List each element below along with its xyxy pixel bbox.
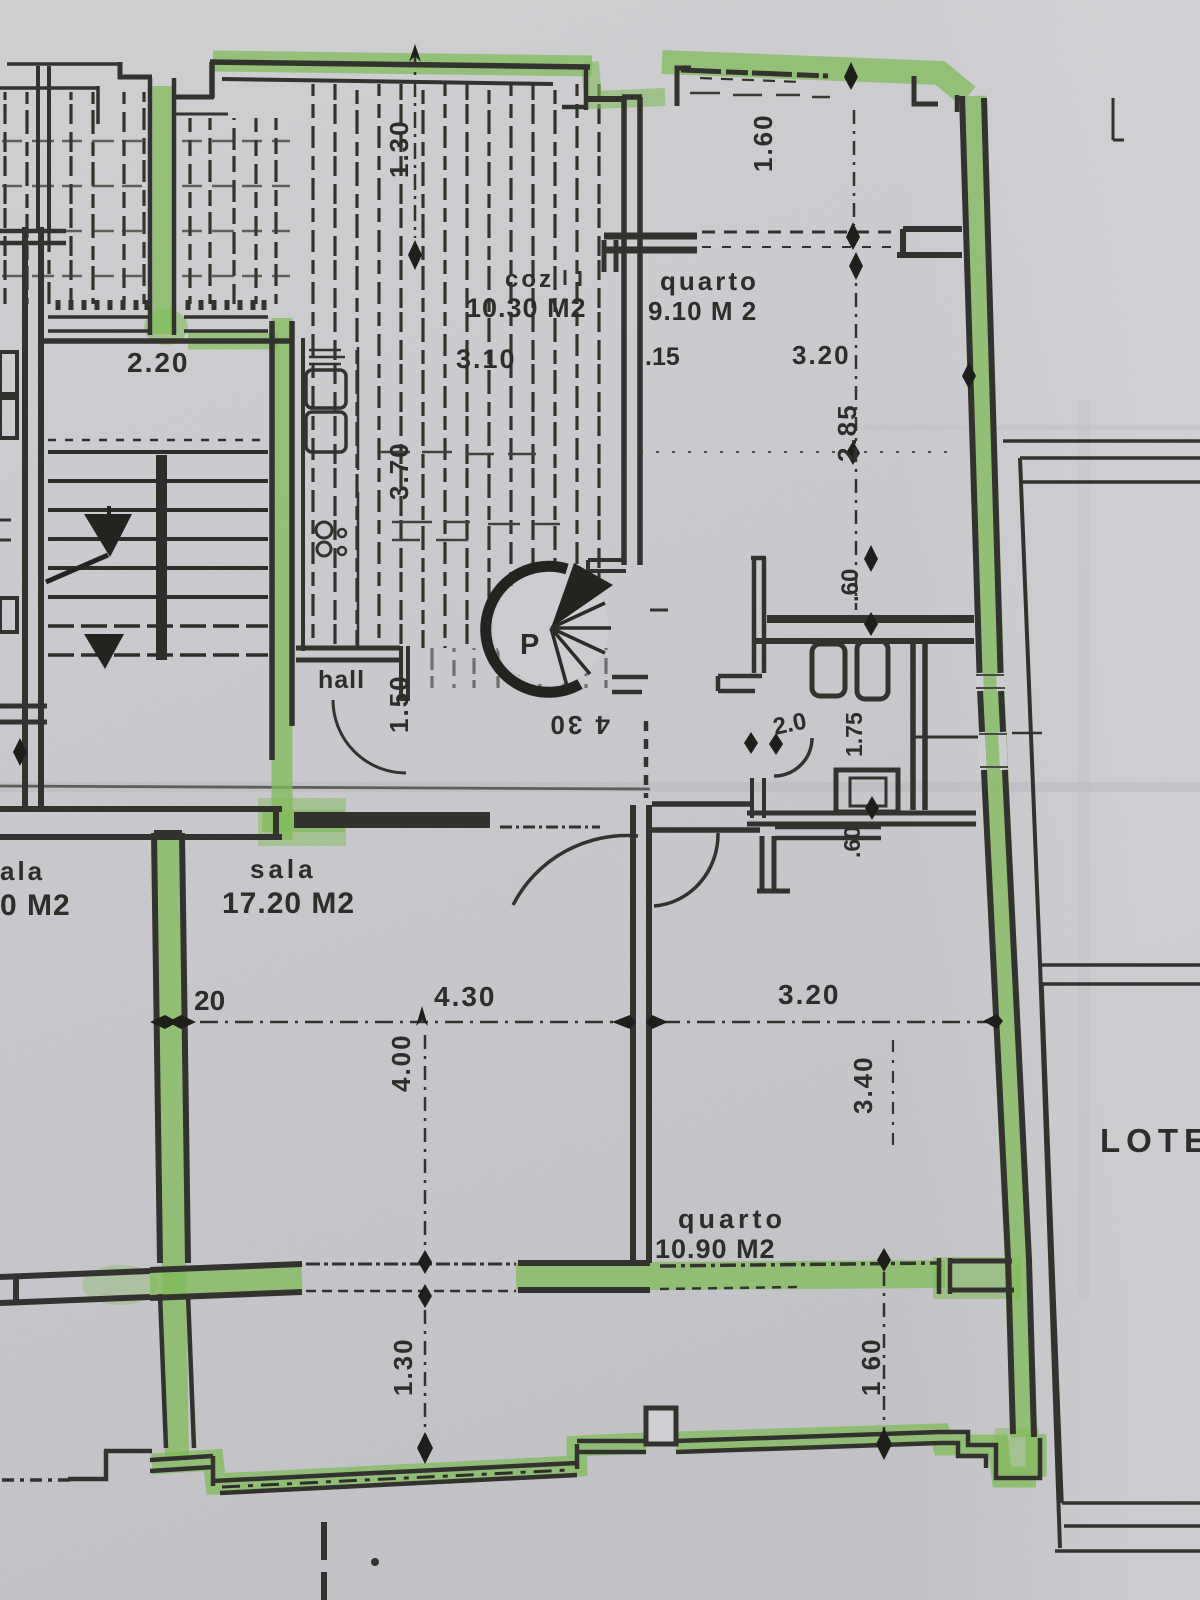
svg-text:quarto: quarto bbox=[678, 1204, 786, 1234]
svg-text:1.30: 1.30 bbox=[384, 119, 414, 178]
svg-text:1.50: 1.50 bbox=[384, 674, 414, 733]
svg-text:10.90 M2: 10.90 M2 bbox=[655, 1234, 776, 1264]
svg-text:ala: ala bbox=[0, 856, 45, 886]
svg-text:1 60: 1 60 bbox=[856, 1337, 886, 1396]
svg-text:1.60: 1.60 bbox=[748, 113, 778, 172]
svg-text:3.10: 3.10 bbox=[456, 344, 517, 374]
svg-text:20: 20 bbox=[194, 985, 225, 1016]
svg-text:2.20: 2.20 bbox=[127, 347, 190, 378]
svg-text:quarto: quarto bbox=[660, 266, 759, 296]
svg-text:4.30: 4.30 bbox=[434, 981, 497, 1012]
svg-text:4.00: 4.00 bbox=[386, 1033, 416, 1092]
svg-text:1.30: 1.30 bbox=[388, 1337, 418, 1396]
svg-text:P: P bbox=[520, 629, 539, 661]
svg-text:hall: hall bbox=[318, 666, 365, 694]
svg-text:coz: coz bbox=[505, 266, 554, 293]
svg-text:2.85: 2.85 bbox=[832, 403, 862, 462]
svg-text:LOTE: LOTE bbox=[1100, 1122, 1200, 1159]
svg-text:17.20 M2: 17.20 M2 bbox=[222, 887, 355, 920]
svg-text:3.40: 3.40 bbox=[848, 1055, 878, 1114]
svg-text:3.20: 3.20 bbox=[778, 979, 841, 1010]
svg-text:.60: .60 bbox=[837, 569, 864, 602]
svg-text:.15: .15 bbox=[645, 343, 680, 371]
svg-text:0 M2: 0 M2 bbox=[0, 889, 71, 922]
svg-text:3.20: 3.20 bbox=[792, 340, 851, 370]
svg-text:4 30: 4 30 bbox=[547, 710, 610, 740]
svg-text:1.75: 1.75 bbox=[841, 712, 867, 757]
svg-text:10.30 M2: 10.30 M2 bbox=[466, 293, 587, 323]
svg-text:.60: .60 bbox=[839, 826, 865, 858]
svg-text:9.10 M 2: 9.10 M 2 bbox=[648, 296, 757, 326]
svg-text:3.70: 3.70 bbox=[384, 441, 414, 500]
svg-text:sala: sala bbox=[250, 854, 317, 884]
